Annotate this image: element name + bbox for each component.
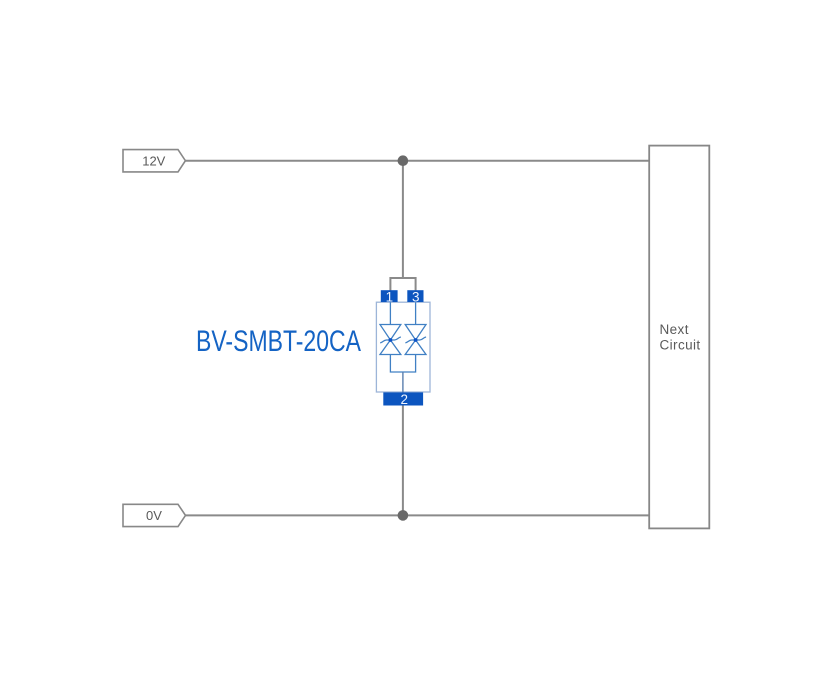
svg-text:2: 2 [401, 392, 409, 407]
svg-text:Circuit: Circuit [660, 338, 701, 353]
svg-text:BV-SMBT-20CA: BV-SMBT-20CA [196, 325, 361, 358]
svg-text:12V: 12V [142, 154, 165, 169]
svg-text:Next: Next [660, 322, 689, 337]
svg-text:0V: 0V [146, 508, 162, 523]
svg-text:1: 1 [386, 290, 394, 305]
svg-text:3: 3 [412, 290, 420, 305]
